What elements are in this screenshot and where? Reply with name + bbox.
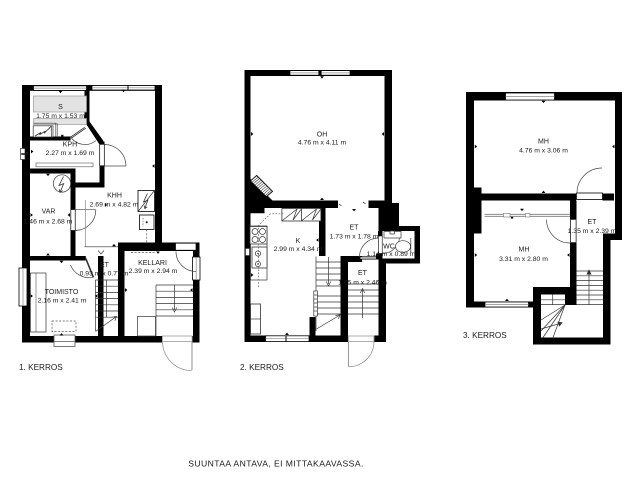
svg-text:1. KERROS: 1. KERROS xyxy=(19,363,63,372)
svg-text:2.69 m x 4.82 m: 2.69 m x 4.82 m xyxy=(90,202,139,209)
svg-text:KELLARI: KELLARI xyxy=(138,260,167,267)
svg-text:OH: OH xyxy=(317,132,328,139)
svg-text:1.75 m x 1.53 m: 1.75 m x 1.53 m xyxy=(36,113,85,120)
svg-text:S: S xyxy=(58,104,63,111)
svg-text:2. KERROS: 2. KERROS xyxy=(240,363,284,372)
svg-text:3.31 m x 2.80 m: 3.31 m x 2.80 m xyxy=(499,256,548,263)
svg-text:1.73 m x 1.78 m: 1.73 m x 1.78 m xyxy=(330,234,379,241)
svg-text:2.27 m x 1.69 m: 2.27 m x 1.69 m xyxy=(46,150,95,157)
svg-text:2.39 m x 2.94 m: 2.39 m x 2.94 m xyxy=(129,268,178,275)
svg-text:KPH: KPH xyxy=(63,141,77,148)
svg-text:1.05 m x 2.46 m: 1.05 m x 2.46 m xyxy=(338,280,387,287)
svg-text:K: K xyxy=(296,238,301,245)
svg-text:1.46 m x 2.68 m: 1.46 m x 2.68 m xyxy=(24,219,73,226)
svg-text:ET: ET xyxy=(588,219,598,226)
svg-text:4.76 m x 4.11 m: 4.76 m x 4.11 m xyxy=(298,140,347,147)
svg-text:ET: ET xyxy=(358,270,368,277)
svg-text:KHH: KHH xyxy=(107,193,122,200)
svg-text:1.14 m x 0.89 m: 1.14 m x 0.89 m xyxy=(367,251,416,258)
svg-text:TOIMISTO: TOIMISTO xyxy=(45,289,79,296)
svg-text:ET: ET xyxy=(100,262,110,269)
svg-text:SUUNTAA ANTAVA, EI MITTAKAAVAS: SUUNTAA ANTAVA, EI MITTAKAAVASSA. xyxy=(188,459,364,469)
svg-text:2.16 m x 2.41 m: 2.16 m x 2.41 m xyxy=(38,298,87,305)
svg-text:MH: MH xyxy=(519,247,530,254)
svg-text:1.35 m x 2.39 m: 1.35 m x 2.39 m xyxy=(568,228,617,235)
svg-text:0.93 m x 0.77 m: 0.93 m x 0.77 m xyxy=(80,271,129,278)
svg-text:3. KERROS: 3. KERROS xyxy=(463,331,507,340)
svg-text:VAR: VAR xyxy=(42,209,56,216)
svg-text:MH: MH xyxy=(538,139,549,146)
svg-text:ET: ET xyxy=(350,225,360,232)
svg-text:2.99 m x 4.34 m: 2.99 m x 4.34 m xyxy=(274,246,323,253)
svg-text:WC: WC xyxy=(383,244,395,251)
svg-text:4.76 m x 3.06 m: 4.76 m x 3.06 m xyxy=(519,148,568,155)
